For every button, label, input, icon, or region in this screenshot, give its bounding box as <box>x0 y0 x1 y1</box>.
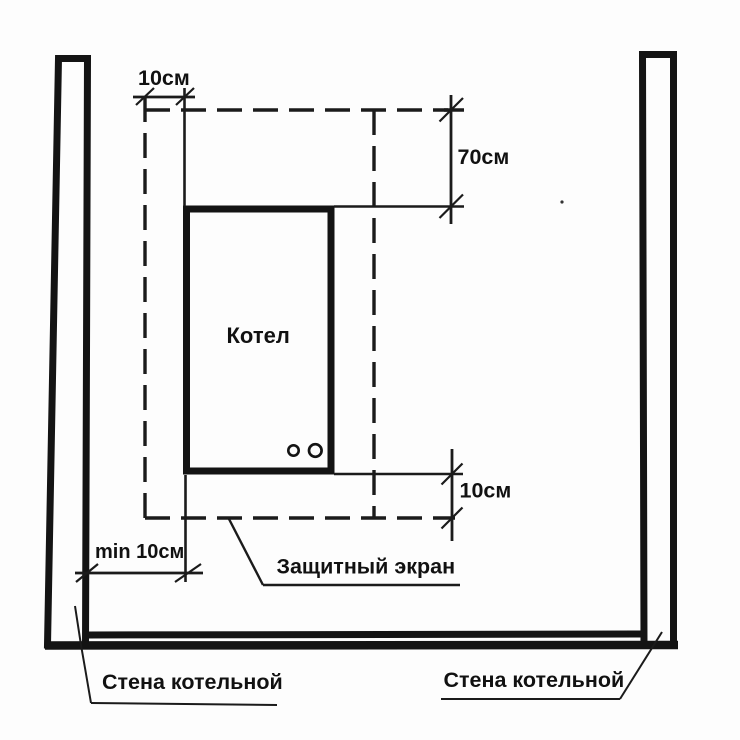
svg-text:Стена котельной: Стена котельной <box>102 670 283 694</box>
svg-text:10см: 10см <box>460 479 512 503</box>
svg-text:min 10см: min 10см <box>95 541 184 563</box>
svg-text:70см: 70см <box>458 145 510 169</box>
svg-text:Защитный экран: Защитный экран <box>277 555 456 579</box>
svg-text:10см: 10см <box>138 66 190 90</box>
svg-text:Котел: Котел <box>227 323 290 348</box>
svg-text:Стена котельной: Стена котельной <box>444 668 625 692</box>
